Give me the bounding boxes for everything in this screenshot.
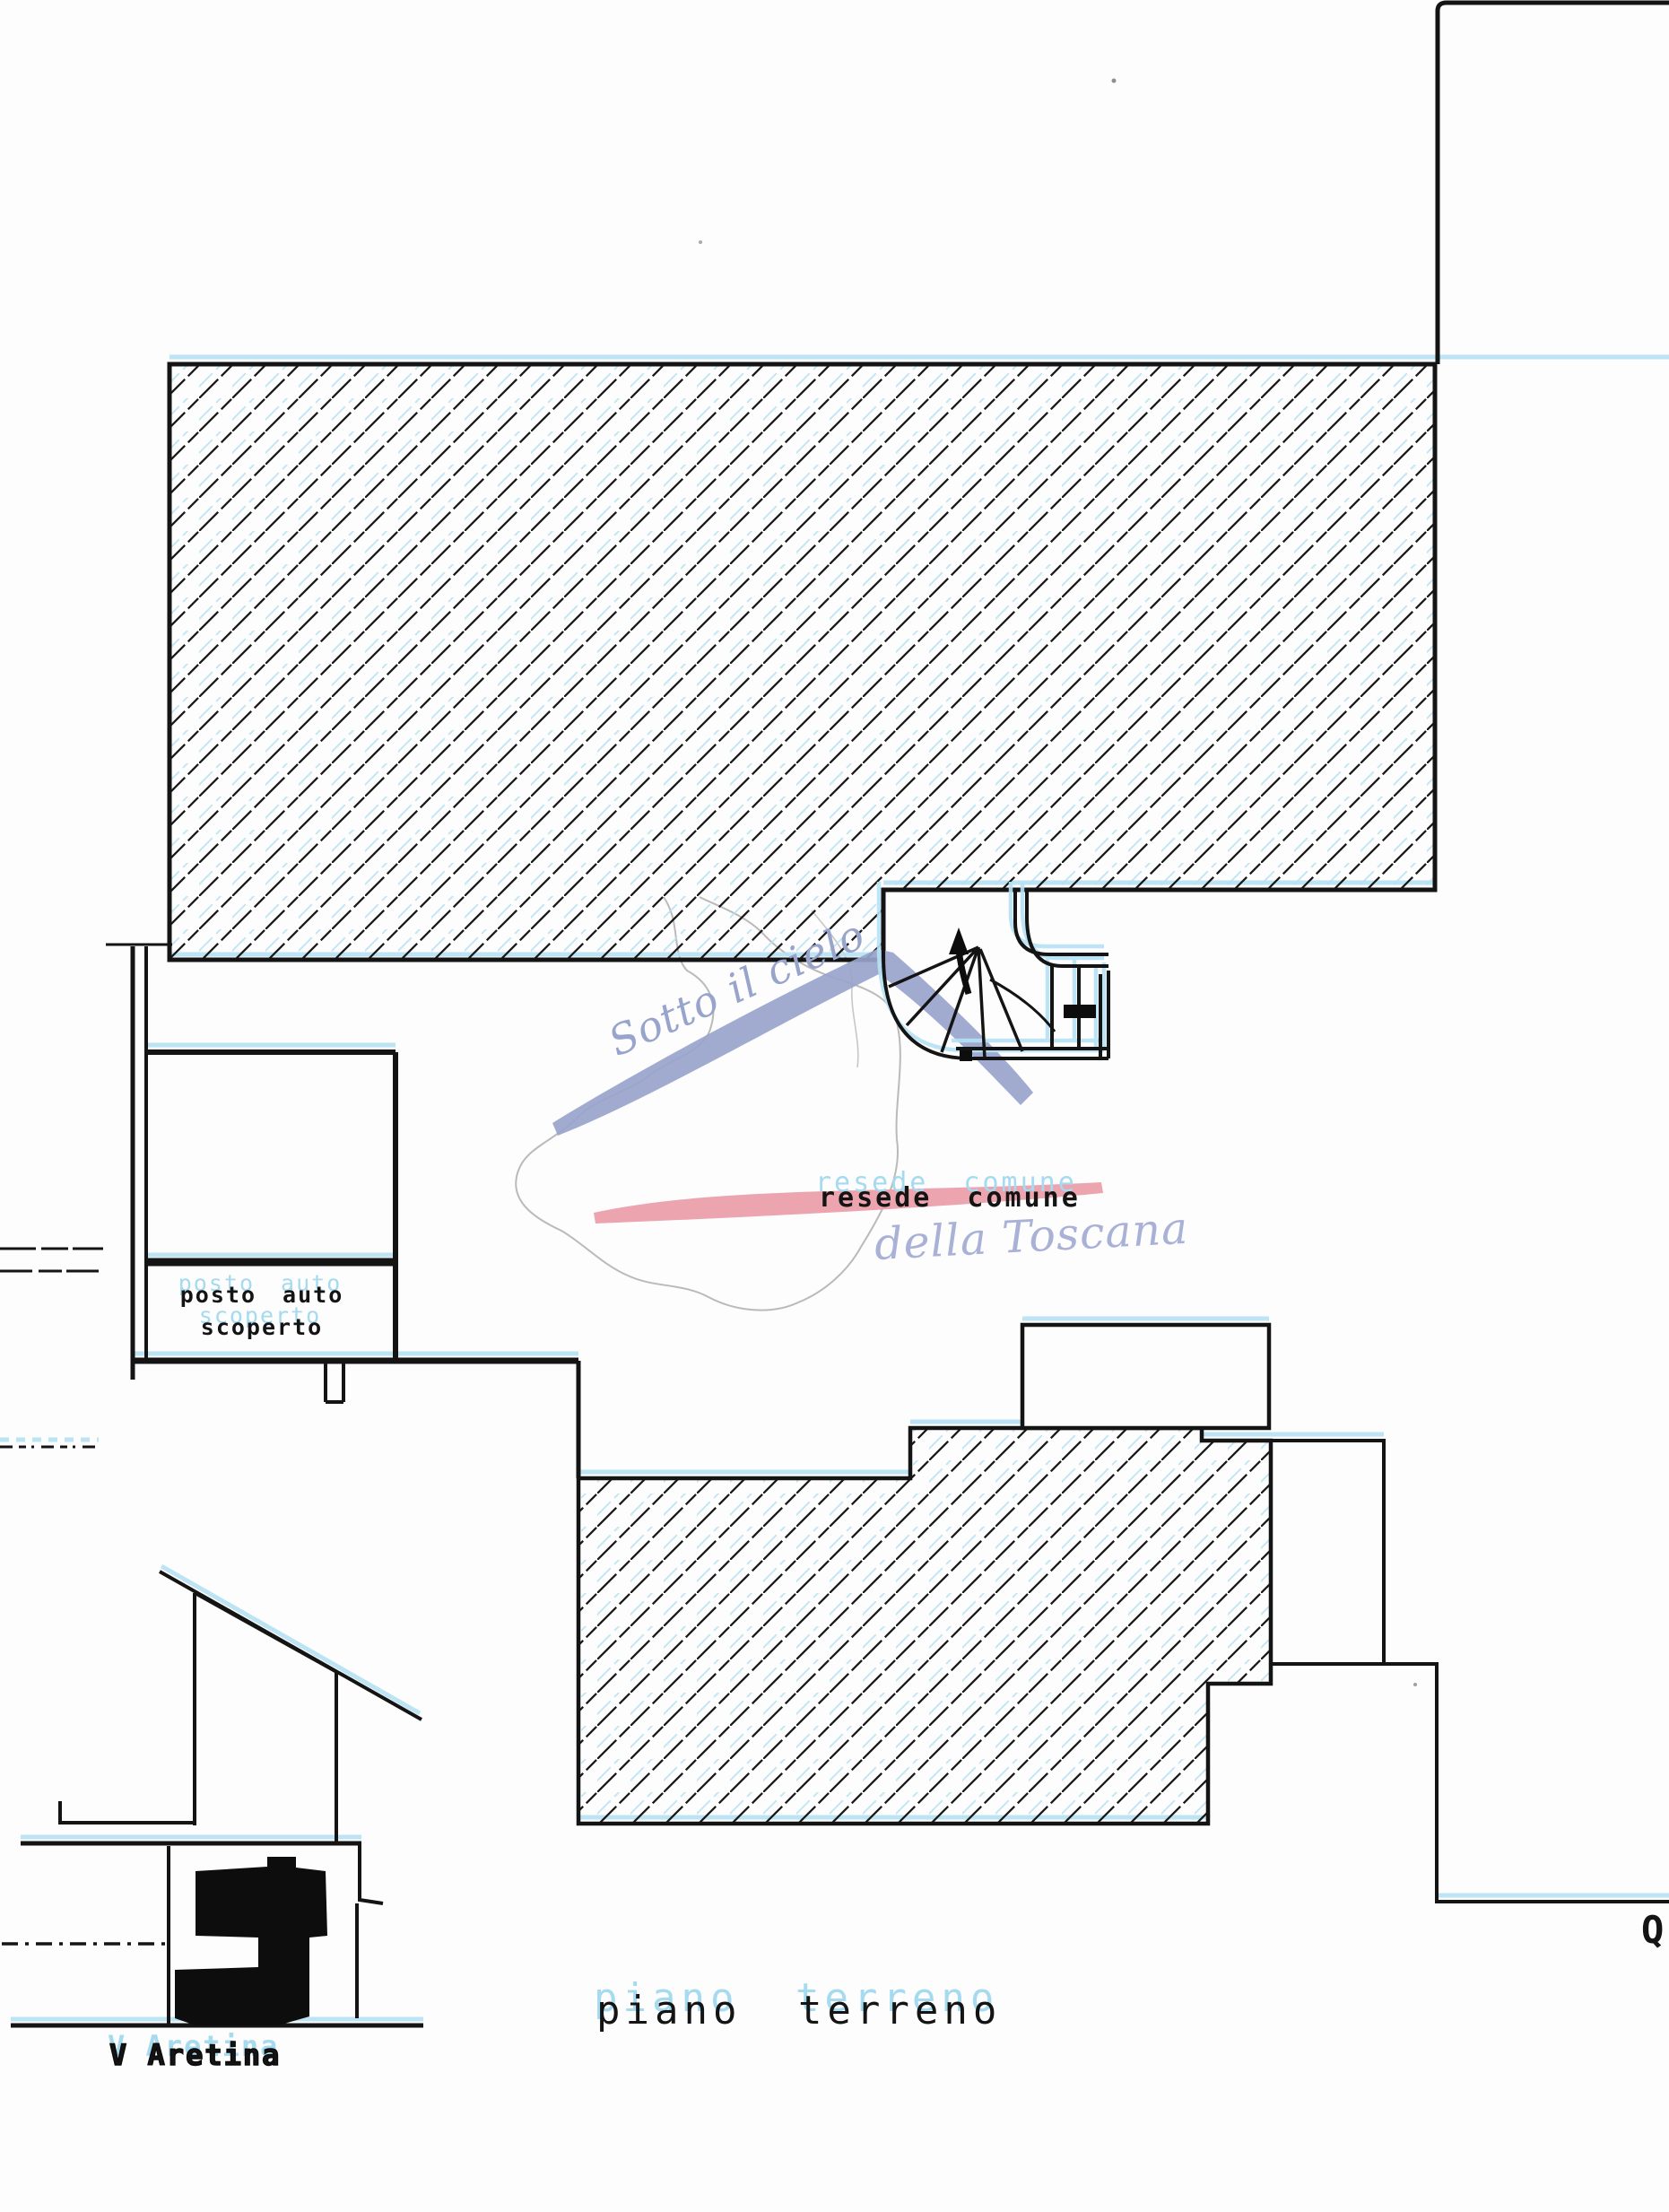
stair-cut-mark <box>1064 1005 1096 1018</box>
floor-plan-drawing: Sotto il cielo della Toscana <box>0 0 1669 2212</box>
street-name: V Aretina <box>109 2038 281 2072</box>
floor-title: piano terreno <box>596 1988 1002 2033</box>
floor-plan-page: Sotto il cielo della Toscana <box>0 0 1669 2212</box>
white-annex-rectangle <box>1022 1325 1269 1428</box>
upper-hatched-building <box>170 364 1435 960</box>
edge-letter-q: Q <box>1641 1908 1664 1952</box>
stair-foot-mark <box>960 1050 972 1061</box>
resede-comune-label: resede comune <box>819 1182 1081 1214</box>
scoperto-label: scoperto <box>201 1314 323 1340</box>
